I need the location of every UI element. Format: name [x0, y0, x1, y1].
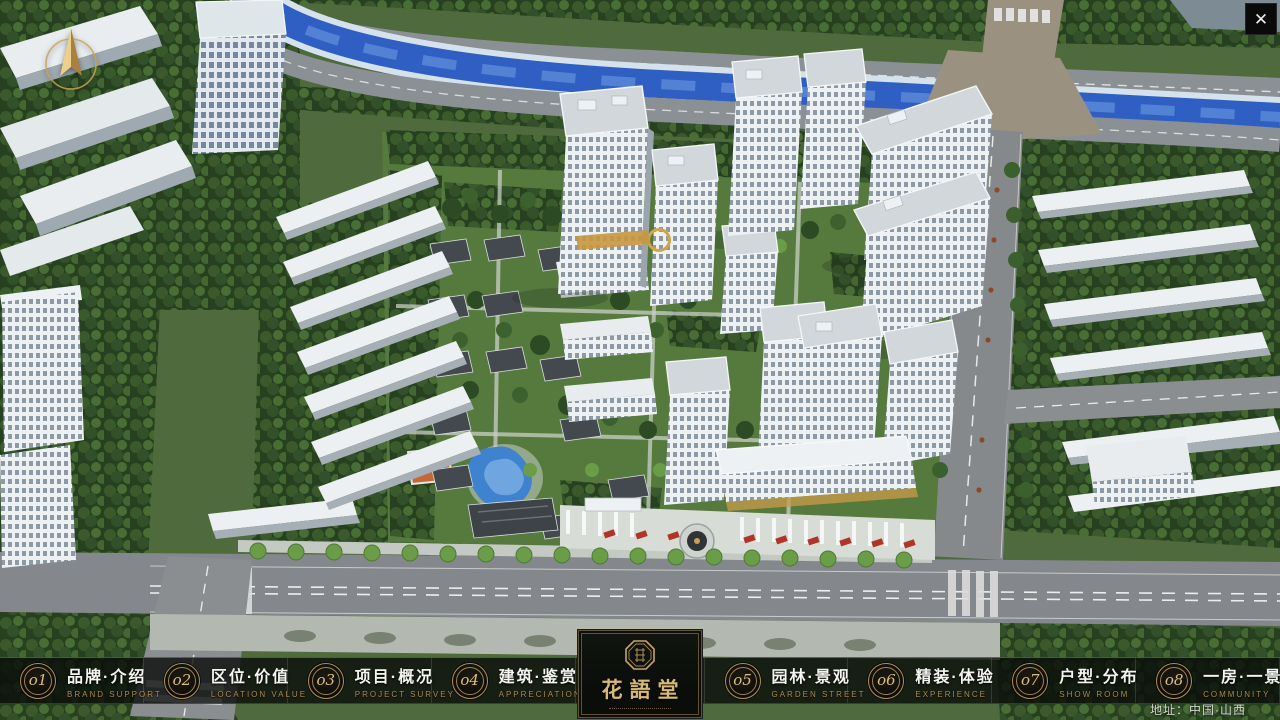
- nav-item-garden[interactable]: o5 园林·景观 GARDEN STREET: [705, 658, 849, 703]
- nav-number-badge: o2: [164, 663, 200, 699]
- nav-item-brand[interactable]: o1 品牌·介绍 BRAND SUPPORT: [0, 658, 144, 703]
- project-logo-tagline: [609, 708, 671, 709]
- nav-item-location[interactable]: o2 区位·价值 LOCATION VALUE: [144, 658, 288, 703]
- nav-label-zh: 建筑·鉴赏: [499, 663, 575, 687]
- nav-label-en: BRAND SUPPORT: [67, 690, 143, 699]
- nav-item-architecture[interactable]: o4 建筑·鉴赏 APPRECIATION: [432, 658, 576, 703]
- masterplan-app-window: ✕ o1 品牌·介绍 BRAND SUPPORT o2 区位·价值 LOCATI…: [0, 0, 1280, 720]
- nav-item-project[interactable]: o3 项目·概况 PROJECT SURVEY: [288, 658, 432, 703]
- project-seal-icon: [625, 640, 655, 670]
- nav-label-en: EXPERIENCE: [915, 690, 991, 699]
- nav-number-badge: o7: [1012, 663, 1048, 699]
- nav-number-badge: o4: [452, 663, 488, 699]
- nav-item-floorplan[interactable]: o7 户型·分布 SHOW ROOM: [992, 658, 1136, 703]
- nav-label-en: PROJECT SURVEY: [355, 690, 431, 699]
- nav-label-zh: 户型·分布: [1059, 663, 1135, 687]
- nav-label-en: GARDEN STREET: [772, 690, 848, 699]
- nav-item-views[interactable]: o8 一房·一景 COMMUNITY: [1136, 658, 1280, 703]
- project-logo-panel[interactable]: 花語堂: [578, 630, 702, 718]
- nav-number-badge: o3: [308, 663, 344, 699]
- nav-label-en: COMMUNITY: [1203, 690, 1279, 699]
- nav-label-zh: 一房·一景: [1203, 663, 1279, 687]
- nav-number-badge: o8: [1156, 663, 1192, 699]
- nav-label-en: SHOW ROOM: [1059, 690, 1135, 699]
- nav-label-zh: 品牌·介绍: [67, 663, 143, 687]
- project-logo-title: 花語堂: [595, 674, 686, 704]
- nav-label-zh: 项目·概况: [355, 663, 431, 687]
- nav-number-badge: o6: [868, 663, 904, 699]
- nav-item-interior[interactable]: o6 精装·体验 EXPERIENCE: [848, 658, 992, 703]
- nav-number-badge: o5: [725, 663, 761, 699]
- nav-number-badge: o1: [20, 663, 56, 699]
- masterplan-aerial-render: [0, 0, 1280, 720]
- nav-label-en: APPRECIATION: [499, 690, 575, 699]
- nav-label-zh: 园林·景观: [772, 663, 848, 687]
- nav-label-zh: 精装·体验: [915, 663, 991, 687]
- nav-label-en: LOCATION VALUE: [211, 690, 287, 699]
- nav-label-zh: 区位·价值: [211, 663, 287, 687]
- close-button[interactable]: ✕: [1245, 3, 1277, 35]
- project-address: 地址：中国·山西: [1150, 701, 1246, 718]
